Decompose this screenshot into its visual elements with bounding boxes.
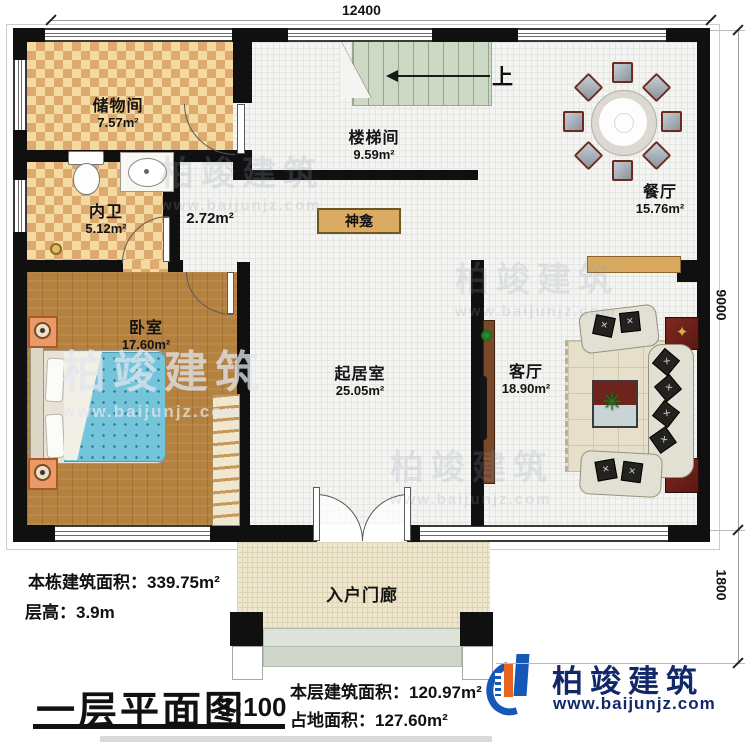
floor-height: 层高：3.9m <box>25 598 115 623</box>
window <box>45 28 232 42</box>
shrine-cabinet: 神龛 <box>317 208 401 234</box>
window <box>288 28 432 42</box>
stair-break-line <box>340 40 376 98</box>
dimension-line-top <box>50 20 712 21</box>
brand-logo-bar-orange <box>504 664 513 697</box>
watermark: 柏竣建筑 www.baijunjz.com <box>390 440 554 508</box>
nightstand-lamp <box>34 464 51 481</box>
dim-label-top: 12400 <box>342 2 381 18</box>
door-leaf <box>163 217 170 262</box>
porch-step <box>263 628 462 648</box>
dining-chair <box>563 111 584 132</box>
sofa-cushion: ✕ <box>619 311 641 333</box>
window <box>13 60 27 130</box>
room-label-storage: 储物间 7.57m² <box>92 98 143 131</box>
room-label-dining: 餐厅 15.76m² <box>636 184 684 217</box>
porch-step <box>263 646 462 667</box>
window <box>420 525 668 542</box>
dim-witness-line <box>710 530 745 531</box>
dim-witness-line <box>710 30 745 31</box>
room-label-bedroom: 卧室 17.60m² <box>122 320 170 353</box>
dining-chair <box>612 160 633 181</box>
sink-faucet <box>144 169 149 174</box>
sofa-cushion: ✕ <box>621 461 644 484</box>
wall-segment <box>168 260 183 272</box>
dim-witness-line <box>496 663 745 664</box>
hall-area-label: 2.72m² <box>186 210 234 227</box>
room-label-stairwell: 楼梯间 9.59m² <box>348 130 399 163</box>
plan-scale: 1:100 <box>220 692 287 723</box>
wall-segment <box>677 260 710 282</box>
dim-label-right-main: 9000 <box>714 289 730 320</box>
window <box>13 180 27 232</box>
dining-chair <box>661 111 682 132</box>
dimension-line-right <box>738 30 739 663</box>
toilet-bowl <box>73 163 100 195</box>
wall-segment <box>210 525 317 542</box>
wall-segment <box>668 525 710 542</box>
room-label-parlor: 客厅 18.90m² <box>502 364 550 397</box>
dining-table-center <box>614 113 634 133</box>
stairs-up-label: 上 <box>492 61 513 91</box>
shrine-label: 神龛 <box>345 213 373 229</box>
room-label-living: 起居室 25.05m² <box>334 366 385 399</box>
wall-segment <box>13 28 27 60</box>
cabinet-plant <box>481 330 492 341</box>
watermark: 柏竣建筑 www.baijunjz.com <box>455 252 619 320</box>
nightstand-lamp <box>34 322 51 339</box>
room-label-bathroom: 内卫 5.12m² <box>85 204 126 237</box>
total-building-area: 本栋建筑面积：339.75m² <box>28 568 220 593</box>
wall-segment <box>432 28 518 42</box>
wall-segment <box>13 525 55 542</box>
footprint-area: 占地面积：127.60m² <box>290 706 448 731</box>
stair-direction-line <box>398 75 490 77</box>
floor-building-area: 本层建筑面积：120.97m² <box>290 678 482 703</box>
room-label-porch: 入户门廊 <box>326 586 398 606</box>
potted-plant: ✳ <box>602 388 622 417</box>
porch-floor <box>237 542 490 628</box>
stair-direction-arrowhead <box>386 70 398 82</box>
floor-drain <box>50 243 62 255</box>
porch-column-base <box>232 646 263 680</box>
door-leaf <box>313 487 320 541</box>
wall-segment <box>233 30 252 103</box>
dim-label-right-porch: 1800 <box>714 569 730 600</box>
bed-headboard <box>30 346 44 468</box>
dining-chair <box>612 62 633 83</box>
sheet-edge-strip <box>100 736 492 742</box>
brand-logo <box>487 650 547 722</box>
title-underline <box>33 724 285 729</box>
door-leaf <box>227 272 234 314</box>
brand-logo-bar-dashes <box>495 670 501 696</box>
brand-url: www.baijunjz.com <box>553 694 716 714</box>
wall-segment <box>13 232 27 542</box>
wall-segment <box>13 260 123 272</box>
window <box>518 28 666 42</box>
porch-column <box>230 612 263 646</box>
tv-screen <box>480 376 487 440</box>
window <box>55 525 210 542</box>
floor-plan-canvas: 上 柏竣建筑 www.baijunjz.com 柏竣建筑 www.baijunj… <box>0 0 750 742</box>
porch-column <box>460 612 493 646</box>
watermark: 柏竣建筑 www.baijunjz.com <box>160 146 324 214</box>
sofa-cushion: ✕ <box>594 458 617 481</box>
